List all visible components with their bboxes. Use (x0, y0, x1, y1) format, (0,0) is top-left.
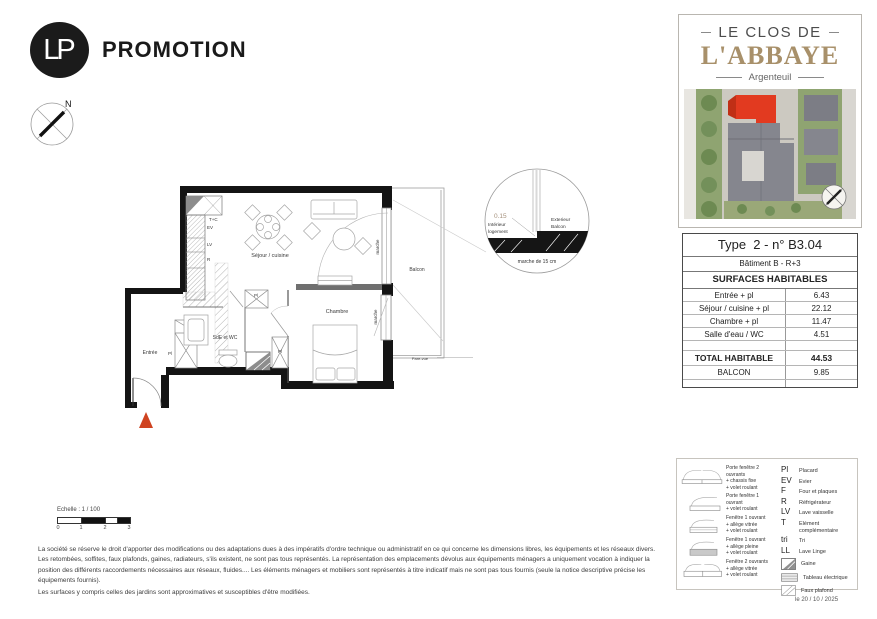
table-row: Séjour / cuisine + pl 22.12 (683, 302, 857, 315)
abbr-row: LV Lave vaisselle (781, 507, 853, 517)
label-sejour: Séjour / cuisine (251, 253, 289, 259)
title-dash (829, 32, 839, 33)
kitchen-appliance-labels: T+C EV LV R (207, 217, 218, 262)
legend-line: + volet roulant (726, 506, 777, 513)
plan-date: le 20 / 10 / 2025 (795, 597, 838, 603)
project-name-main: L'ABBAYE (679, 42, 861, 69)
porte-fenetre-1-ouvrant-icon (681, 493, 723, 513)
abbr-label: Placard (799, 468, 818, 475)
label-entree: Entrée (143, 350, 158, 356)
scale-tick: 1 (79, 525, 82, 531)
row-label: Salle d'eau / WC (683, 328, 786, 340)
label-marche-1: marche (375, 239, 380, 255)
disclaimer-paragraph-1: La société se réserve le droit d'apporte… (38, 545, 666, 587)
detail-exterior-line1: Exterieur (551, 217, 571, 223)
kitchen-label-r: R (207, 257, 211, 262)
abbr-code: EV (781, 476, 794, 485)
plan-sheet: { "header": { "logo_monogram": "LP", "lo… (0, 0, 877, 619)
detail-leader-line (393, 200, 486, 252)
abbr-code: LV (781, 507, 794, 516)
tv-stand (318, 276, 352, 285)
abbr-row: tri Tri (781, 535, 853, 545)
legend-line: + volet roulant (726, 572, 768, 579)
project-title-line1: LE CLOS DE (679, 24, 861, 41)
gaine-icon (781, 558, 796, 570)
disclaimer-text: La société se réserve le droit d'apporte… (38, 545, 666, 599)
abbr-label: Tri (799, 538, 805, 545)
porte-fenetre-2-ouvrants-icon (681, 465, 723, 487)
abbr-code: LL (781, 546, 794, 555)
row-label: Entrée + pl (683, 289, 786, 301)
abbr-row: F Four et plaques (781, 486, 853, 496)
row-value: 4.51 (786, 330, 857, 339)
scale-ticks: 0 1 2 3 (57, 524, 131, 532)
kitchen-label-lv: LV (207, 242, 212, 247)
balcony-windows (318, 208, 391, 340)
lp-promotion-logo: LP PROMOTION (30, 22, 247, 78)
row-value: 6.43 (786, 291, 857, 300)
abbr-label: Evier (799, 479, 812, 486)
surface-table: Type 2 - n° B3.04 Bâtiment B - R+3 SURFA… (682, 233, 858, 388)
lp-monogram-icon: LP (30, 22, 89, 78)
detail-step-value: 0.15 (494, 213, 507, 220)
fenetre-1-ouvrant-vitree-icon (681, 515, 723, 535)
legend-line: Fenêtre 2 ouvrants (726, 559, 768, 566)
abbr-label: Lave Linge (799, 549, 826, 556)
chambre-door-leaf (271, 313, 288, 336)
north-compass-icon: N (31, 99, 73, 145)
table-total-row: TOTAL HABITABLE 44.53 (683, 351, 857, 366)
scale-tick: 2 (103, 525, 106, 531)
legend-item: Fenêtre 1 ouvrant + allège pleine + vole… (681, 537, 777, 557)
disclaimer-paragraph-2: Les surfaces y compris celles des jardin… (38, 588, 666, 598)
label-marche-2: marche (373, 309, 378, 325)
abbr-label: Réfrigérateur (799, 500, 831, 507)
kitchen-label-ev: EV (207, 225, 213, 230)
detail-interior-line1: Intérieur (488, 222, 506, 228)
unit-type-title: Type 2 - n° B3.04 (683, 234, 857, 257)
abbr-row: R Réfrigérateur (781, 497, 853, 507)
faux-plafond-icon (781, 585, 796, 596)
project-name-top: LE CLOS DE (718, 24, 821, 41)
step-detail-circle: 0.15 Intérieur logement Exterieur Balcon… (485, 169, 589, 273)
coffee-table (333, 228, 355, 250)
entrance-marker-triangle (139, 412, 153, 428)
table-row: Chambre + pl 11.47 (683, 315, 857, 328)
label-balcon: Balcon (409, 267, 425, 273)
scale-tick: 3 (127, 525, 130, 531)
abbr-label: Lave vaisselle (799, 510, 834, 517)
abbr-row: EV Evier (781, 476, 853, 486)
label-pl-entree: Pl (168, 351, 172, 356)
legend-line: + volet roulant (726, 485, 777, 492)
building-label: Bâtiment B - R+3 (683, 257, 857, 272)
legend-window-symbols: Porte fenêtre 2 ouvrants + chassis fixe … (681, 465, 777, 585)
subtitle-dash (716, 77, 742, 78)
detail-interior-line2: logement (488, 229, 508, 235)
abbr-row: T Elément complémentaire (781, 518, 853, 534)
label-pl-sejour: Pl (254, 293, 258, 298)
abbr-code: tri (781, 535, 794, 544)
floor-plan-drawing: N (0, 88, 660, 548)
legend-line: Fenêtre 1 ouvrant (726, 537, 765, 544)
logo-wordmark: PROMOTION (102, 37, 247, 63)
legend-line: + volet roulant (726, 550, 765, 557)
row-value: 11.47 (786, 317, 857, 326)
legend-item: Porte fenêtre 1 ouvrant + volet roulant (681, 493, 777, 513)
scale-label: Echelle : 1 / 100 (57, 507, 131, 513)
map-compass-icon (822, 185, 846, 209)
legend-line: Fenêtre 1 ouvrant (726, 515, 765, 522)
fenetre-1-ouvrant-pleine-icon (681, 537, 723, 557)
legend-item: Fenêtre 2 ouvrants + allège vitrée + vol… (681, 559, 777, 579)
legend-line: Porte fenêtre 1 ouvrant (726, 493, 777, 506)
symbol-row: Gaine (781, 558, 853, 570)
abbr-code: R (781, 497, 794, 506)
row-label: Chambre + pl (683, 315, 786, 327)
balcony-label: BALCON (683, 366, 786, 379)
gaine-box (246, 352, 270, 370)
sejour-furniture (245, 200, 372, 285)
sofa (311, 200, 357, 219)
symbol-label: Tableau électrique (803, 575, 848, 581)
legend-line: Porte fenêtre 2 ouvrants (726, 465, 777, 478)
dining-set (245, 205, 293, 251)
entrance-door (133, 378, 161, 406)
subtitle-dash (798, 77, 824, 78)
armchair (355, 238, 372, 255)
abbr-row: Pl Placard (781, 465, 853, 475)
legend-panel: Porte fenêtre 2 ouvrants + chassis fixe … (676, 458, 858, 590)
symbol-label: Faux plafond (801, 588, 833, 594)
compass-north-label: N (65, 99, 72, 109)
tableau-electrique-icon (781, 573, 798, 582)
scale-segments (57, 517, 131, 524)
table-row: Entrée + pl 6.43 (683, 289, 857, 302)
detail-exterior-line2: Balcon (551, 224, 566, 230)
label-sde: SdE et WC (213, 335, 238, 341)
table-spacer-row (683, 341, 857, 351)
row-label: Séjour / cuisine + pl (683, 302, 786, 314)
legend-line: + volet roulant (726, 528, 765, 535)
abbr-row: LL Lave Linge (781, 546, 853, 556)
table-balcony-row: BALCON 9.85 (683, 366, 857, 380)
detail-caption: marche de 15 cm (518, 259, 557, 265)
label-chambre: Chambre (326, 309, 349, 315)
legend-abbreviations: Pl Placard EV Evier F Four et plaques R … (781, 465, 853, 585)
detail-leader-line (393, 285, 443, 341)
armchair (304, 223, 321, 240)
legend-item: Fenêtre 1 ouvrant + allège vitrée + vole… (681, 515, 777, 535)
bed (313, 325, 357, 383)
wc-bowl (219, 355, 237, 367)
symbol-row: Tableau électrique (781, 573, 853, 582)
kitchen-label-tc: T+C (209, 217, 218, 222)
abbr-code: Pl (781, 465, 794, 474)
scale-tick: 0 (56, 525, 59, 531)
abbr-label: Elément complémentaire (799, 521, 853, 534)
fenetre-2-ouvrants-vitree-icon (681, 559, 723, 579)
wc-tank (219, 350, 237, 355)
legend-item: Porte fenêtre 2 ouvrants + chassis fixe … (681, 465, 777, 491)
symbol-row: Faux plafond (781, 585, 853, 596)
title-dash (701, 32, 711, 33)
project-city-label: Argenteuil (749, 72, 792, 83)
project-city: Argenteuil (679, 72, 861, 83)
label-pare-vue: Pare-vue (412, 356, 429, 361)
site-aerial-view (684, 89, 856, 219)
table-row: Salle d'eau / WC 4.51 (683, 328, 857, 341)
abbr-code: T (781, 518, 794, 527)
scale-bar: Echelle : 1 / 100 0 1 2 3 (57, 507, 131, 532)
row-value: 22.12 (786, 304, 857, 313)
label-pl-chambre: Pl (278, 349, 282, 354)
balcony-value: 9.85 (786, 368, 857, 377)
sde-door-leaf (230, 291, 243, 307)
table-section-header: SURFACES HABITABLES (683, 272, 857, 289)
symbol-label: Gaine (801, 561, 816, 567)
project-card: LE CLOS DE L'ABBAYE Argenteuil (678, 14, 862, 228)
total-value: 44.53 (786, 353, 857, 363)
abbr-code: F (781, 486, 794, 495)
abbr-label: Four et plaques (799, 489, 837, 496)
total-label: TOTAL HABITABLE (683, 351, 786, 365)
table-spacer-row (683, 380, 857, 387)
